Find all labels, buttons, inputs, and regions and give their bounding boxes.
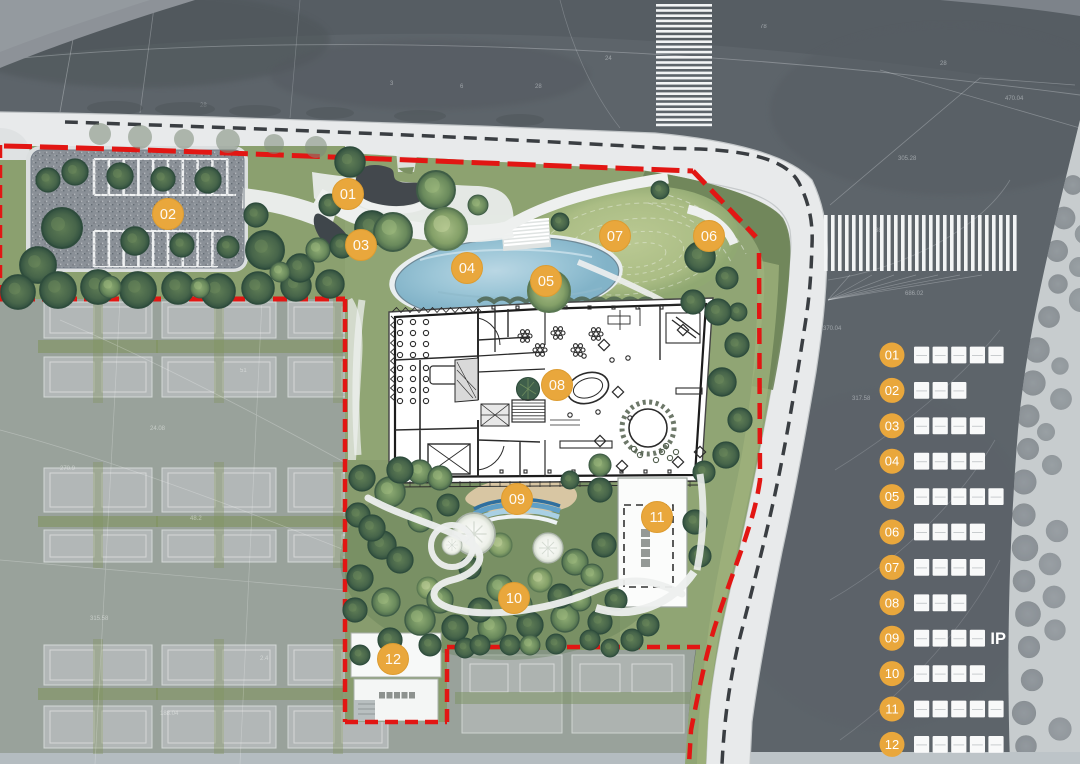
svg-text:09: 09	[509, 492, 525, 508]
svg-text:03: 03	[353, 238, 369, 254]
svg-text:317.58: 317.58	[852, 396, 871, 402]
svg-text:07: 07	[885, 560, 899, 575]
svg-text:10: 10	[506, 591, 522, 607]
svg-text:02: 02	[885, 383, 899, 398]
svg-text:07: 07	[607, 229, 623, 245]
svg-text:03: 03	[885, 418, 899, 433]
svg-text:270.9: 270.9	[60, 466, 76, 472]
svg-text:24.08: 24.08	[150, 426, 166, 432]
svg-text:48.2: 48.2	[190, 516, 202, 522]
svg-text:04: 04	[885, 454, 899, 469]
svg-text:28: 28	[535, 84, 542, 90]
svg-text:06: 06	[885, 525, 899, 540]
svg-text:12: 12	[885, 737, 899, 752]
svg-text:11: 11	[649, 510, 664, 526]
svg-text:305.28: 305.28	[898, 156, 917, 162]
svg-text:09: 09	[885, 631, 899, 646]
svg-text:10: 10	[885, 666, 899, 681]
svg-text:370.04: 370.04	[823, 326, 842, 332]
svg-text:04: 04	[459, 261, 475, 277]
svg-text:188.04: 188.04	[160, 711, 179, 717]
svg-text:01: 01	[885, 348, 899, 363]
svg-text:02: 02	[160, 207, 176, 223]
svg-text:470.04: 470.04	[1005, 96, 1024, 102]
svg-text:08: 08	[549, 378, 565, 394]
svg-text:01: 01	[340, 187, 356, 203]
svg-text:06: 06	[701, 229, 717, 245]
svg-text:78: 78	[760, 24, 767, 30]
svg-text:2.4: 2.4	[260, 656, 269, 662]
svg-text:08: 08	[885, 595, 899, 610]
svg-text:05: 05	[538, 274, 554, 290]
svg-text:12: 12	[385, 652, 401, 668]
svg-text:IP: IP	[990, 630, 1006, 648]
svg-text:24: 24	[605, 56, 612, 62]
svg-text:51: 51	[240, 368, 247, 374]
svg-text:28: 28	[940, 61, 947, 67]
svg-text:315.58: 315.58	[90, 616, 109, 622]
svg-text:686.02: 686.02	[905, 291, 924, 297]
svg-text:05: 05	[885, 489, 899, 504]
svg-text:11: 11	[885, 702, 899, 717]
